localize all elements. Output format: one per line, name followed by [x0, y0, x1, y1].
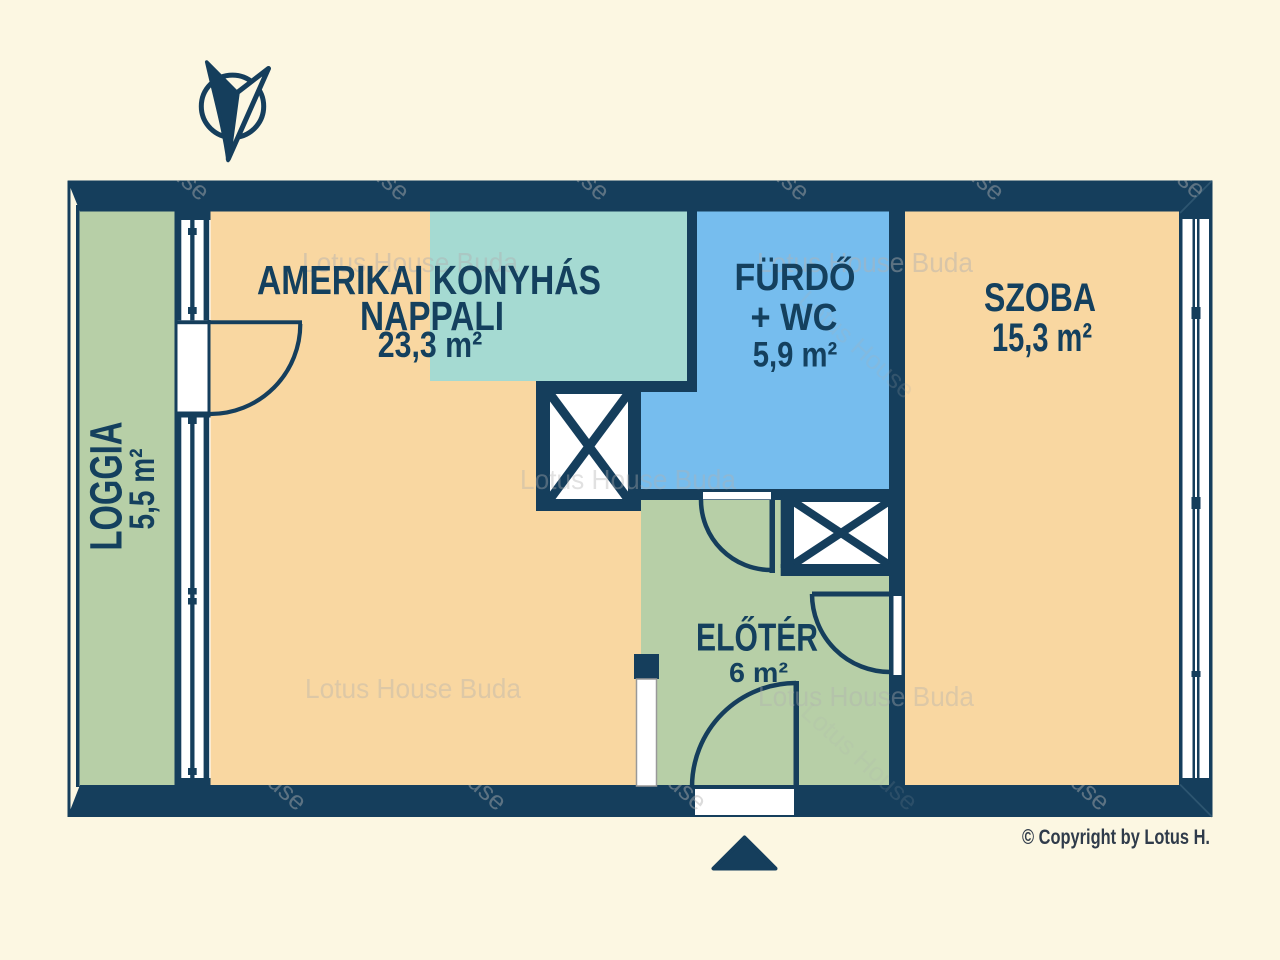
- svg-text:+ WC: + WC: [751, 297, 838, 339]
- svg-text:15,3 m²: 15,3 m²: [992, 316, 1092, 360]
- svg-text:SZOBA: SZOBA: [984, 276, 1096, 320]
- svg-text:23,3 m²: 23,3 m²: [378, 324, 483, 365]
- svg-text:5,9 m²: 5,9 m²: [753, 336, 838, 375]
- svg-text:Lotus House Buda: Lotus House Buda: [520, 464, 736, 495]
- svg-text:© Copyright by Lotus H.: © Copyright by Lotus H.: [1022, 826, 1210, 849]
- svg-text:ELŐTÉR: ELŐTÉR: [696, 616, 818, 660]
- svg-text:FÜRDŐ: FÜRDŐ: [735, 255, 856, 299]
- svg-text:5,5 m²: 5,5 m²: [123, 449, 162, 530]
- svg-text:Lotus House Buda: Lotus House Buda: [305, 673, 521, 704]
- svg-text:Lotus House Buda: Lotus House Buda: [758, 681, 974, 712]
- svg-text:6 m²: 6 m²: [729, 657, 788, 688]
